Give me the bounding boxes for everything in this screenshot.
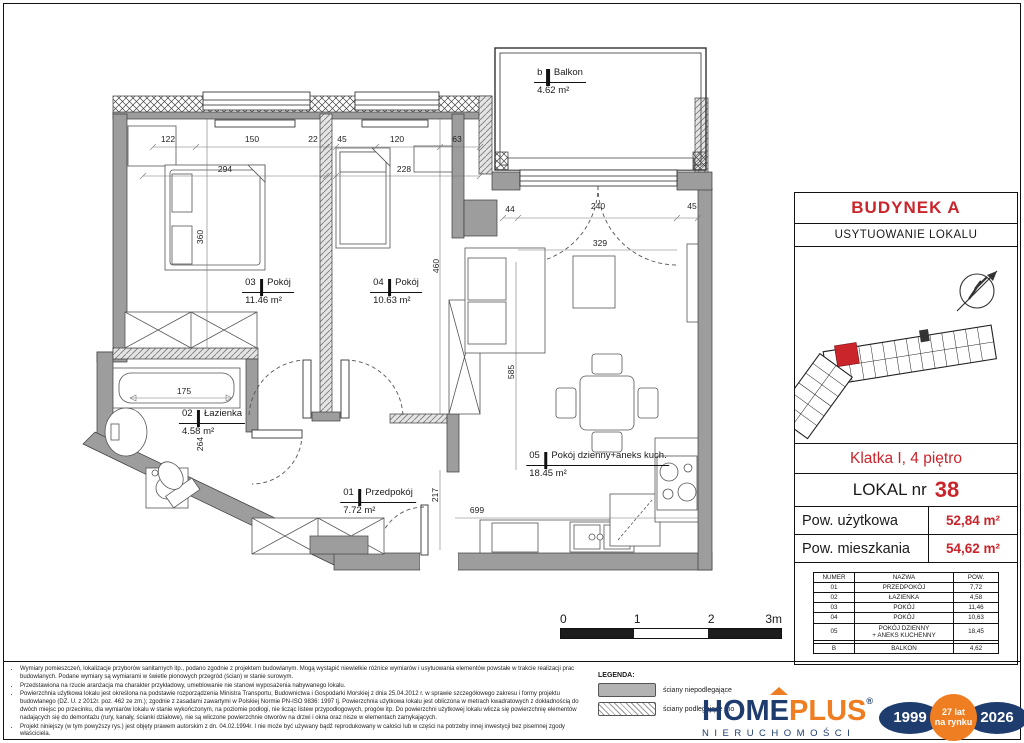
room-label: bBalkon4.62 m² [534,64,586,96]
table-row: 01PRZEDPOKÓJ7,72 [814,583,999,593]
dimension-label: 45 [687,201,696,211]
disclaimer-bullet: Powierzchnia użytkowa lokalu jest określ… [20,691,586,722]
room-number: 05 [529,450,540,461]
table-cell: B [814,643,855,653]
room-label-row: 04Pokój [370,274,422,293]
table-cell: 4,62 [954,643,999,653]
usable-area-row: Pow. użytkowa 52,84 m² [795,507,1017,535]
room-label-bar [544,452,548,469]
scale-segment [634,629,707,638]
room-label: 05Pokój dzienny+aneks kuch.18.45 m² [526,447,669,479]
anniversary-badges: 1999 27 lat na rynku 2026 [879,694,1024,741]
building-title: BUDYNEK A [795,193,1017,224]
roof-accent-icon [770,687,788,695]
dimension-label: 217 [430,488,440,502]
table-cell: POKÓJ [855,603,954,613]
table-cell: 7,72 [954,583,999,593]
room-name: Pokój dzienny+aneks kuch. [551,450,666,461]
room-number: 03 [245,277,256,288]
table-cell: 03 [814,603,855,613]
room-label-row: 01Przedpokój [340,484,416,503]
table-cell: 11,46 [954,603,999,613]
room-name: Pokój [267,277,291,288]
dimension-label: 228 [397,164,411,174]
room-area: 4.62 m² [534,83,572,96]
solid-wall-swatch [598,683,656,697]
room-label-bar [197,410,201,427]
room-table: NUMER NAZWA POW. 01PRZEDPOKÓJ7,7202ŁAZIE… [813,572,999,654]
dimension-label: 585 [506,365,516,379]
table-cell: ŁAZIENKA [855,593,954,603]
room-number: 04 [373,277,384,288]
table-cell: 10,63 [954,613,999,623]
legend-label: ściany niepodlegające [663,687,732,694]
room-label-bar [546,69,550,86]
dimension-label: 699 [470,505,484,515]
dimension-label: 460 [431,259,441,273]
room-label-bar [388,279,392,296]
room-area: 11.46 m² [242,293,285,306]
table-row: 03POKÓJ11,46 [814,603,999,613]
table-cell: POKÓJ [855,613,954,623]
logo-plus: PLUS [789,695,866,727]
usable-area-label: Pow. użytkowa [795,507,928,534]
site-plan [795,247,1017,444]
room-name: Przedpokój [365,487,413,498]
scale-segment [561,629,634,638]
disclaimer-list: Wymiary pomieszczeń, lokalizacje przybor… [10,666,586,739]
room-table-wrap: NUMER NAZWA POW. 01PRZEDPOKÓJ7,7202ŁAZIE… [795,563,1017,664]
dimension-label: 122 [161,134,175,144]
homeplus-logo: HOMEPLUS® NIERUCHOMOŚCI 1999 27 lat na r… [702,694,1020,741]
room-number: 01 [343,487,354,498]
dimension-label: 329 [593,238,607,248]
table-row: 02ŁAZIENKA4,58 [814,593,999,603]
table-cell: 4,58 [954,593,999,603]
table-cell: PRZEDPOKÓJ [855,583,954,593]
table-cell: POKÓJ DZIENNY + ANEKS KUCHENNY [855,623,954,640]
room-name: Łazienka [204,408,242,419]
dimension-label: 264 [195,437,205,451]
residential-area-row: Pow. mieszkania 54,62 m² [795,535,1017,563]
usable-area-value: 52,84 m² [928,507,1017,534]
header-pow: POW. [954,573,999,583]
disclaimer: Wymiary pomieszczeń, lokalizacje przybor… [10,666,586,740]
table-row: BBALKON4,62 [814,643,999,653]
scale-bar: 0 1 2 3m [560,612,782,639]
lokal-number: 38 [935,477,959,503]
table-cell: 01 [814,583,855,593]
info-panel: BUDYNEK A USYTUOWANIE LOKALU [794,192,1018,665]
room-label: 01Przedpokój7.72 m² [340,484,416,516]
room-number: 02 [182,408,193,419]
room-label: 02Łazienka4.58 m² [179,405,245,437]
dimension-label: 150 [245,134,259,144]
table-cell: 02 [814,593,855,603]
logo-wordmark: HOMEPLUS® [702,697,873,726]
table-cell: 18,45 [954,623,999,640]
room-label-row: 05Pokój dzienny+aneks kuch. [526,447,669,466]
logo-subtitle: NIERUCHOMOŚCI [702,728,873,739]
staircase-floor: Klatka I, 4 piętro [795,444,1017,474]
room-label-row: 02Łazienka [179,405,245,424]
room-label-bar [260,279,264,296]
room-area: 18.45 m² [526,466,570,479]
table-body: 01PRZEDPOKÓJ7,7202ŁAZIENKA4,5803POKÓJ11,… [814,583,999,654]
scale-segment [708,629,781,638]
badge-line2: na rynku [935,718,973,728]
residential-area-value: 54,62 m² [928,535,1017,562]
site-plan-drawing [795,247,1019,443]
room-label: 04Pokój10.63 m² [370,274,422,306]
hatched-wall-swatch [598,702,656,716]
logo-e-letter: E [770,695,789,727]
room-number: b [537,67,542,78]
room-name: Balkon [554,67,583,78]
compass-icon [957,271,997,311]
legend-title: LEGENDA: [598,672,748,679]
disclaimer-bullet: Wymiary pomieszczeń, lokalizacje przybor… [20,666,586,682]
floorplan-page: 1221502245120632942283604604424045329585… [0,0,1024,743]
scale-label-0: 0 [560,612,567,626]
scale-label-3: 3m [765,612,782,626]
room-label-row: 03Pokój [242,274,294,293]
room-area: 10.63 m² [370,293,414,306]
room-label: 03Pokój11.46 m² [242,274,294,306]
disclaimer-bullet: Przedstawiona na rzucie aranżacja ma cha… [20,683,586,691]
table-row: 04POKÓJ10,63 [814,613,999,623]
dimension-label: 294 [218,164,232,174]
dimension-label: 22 [308,134,317,144]
logo-e: E [770,695,789,727]
scale-bar-segments [560,628,782,639]
dimension-label: 44 [505,204,514,214]
footer-divider [3,661,1021,662]
room-label-bar [358,489,362,506]
logo-home: HOM [702,695,770,727]
table-row: 05POKÓJ DZIENNY + ANEKS KUCHENNY18,45 [814,623,999,640]
building-outline [795,319,996,438]
logo-text: HOMEPLUS® NIERUCHOMOŚCI [702,697,873,739]
badge-anniversary: 27 lat na rynku [930,694,977,741]
scale-labels: 0 1 2 3m [560,612,782,628]
location-title: USYTUOWANIE LOKALU [795,224,1017,247]
dimension-label: 240 [591,201,605,211]
residential-area-label: Pow. mieszkania [795,535,928,562]
table-cell: BALKON [855,643,954,653]
scale-label-2: 2 [708,612,715,626]
header-numer: NUMER [814,573,855,583]
dimension-label: 175 [177,386,191,396]
dimension-label: 63 [452,134,461,144]
disclaimer-bullet: Projekt niniejszy (w tym powyższy rys.) … [20,724,586,740]
room-name: Pokój [395,277,419,288]
lokal-number-row: LOKAL nr 38 [795,474,1017,507]
dimension-label: 120 [390,134,404,144]
registered-mark: ® [866,696,873,706]
header-nazwa: NAZWA [855,573,954,583]
table-header-row: NUMER NAZWA POW. [814,573,999,583]
dimension-label: 45 [337,134,346,144]
highlighted-unit [834,342,859,366]
balcony-outline [495,48,706,170]
dimension-label: 360 [195,230,205,244]
table-cell: 05 [814,623,855,640]
room-label-row: bBalkon [534,64,586,83]
scale-label-1: 1 [634,612,641,626]
lokal-label: LOKAL nr [853,480,927,500]
table-cell: 04 [814,613,855,623]
